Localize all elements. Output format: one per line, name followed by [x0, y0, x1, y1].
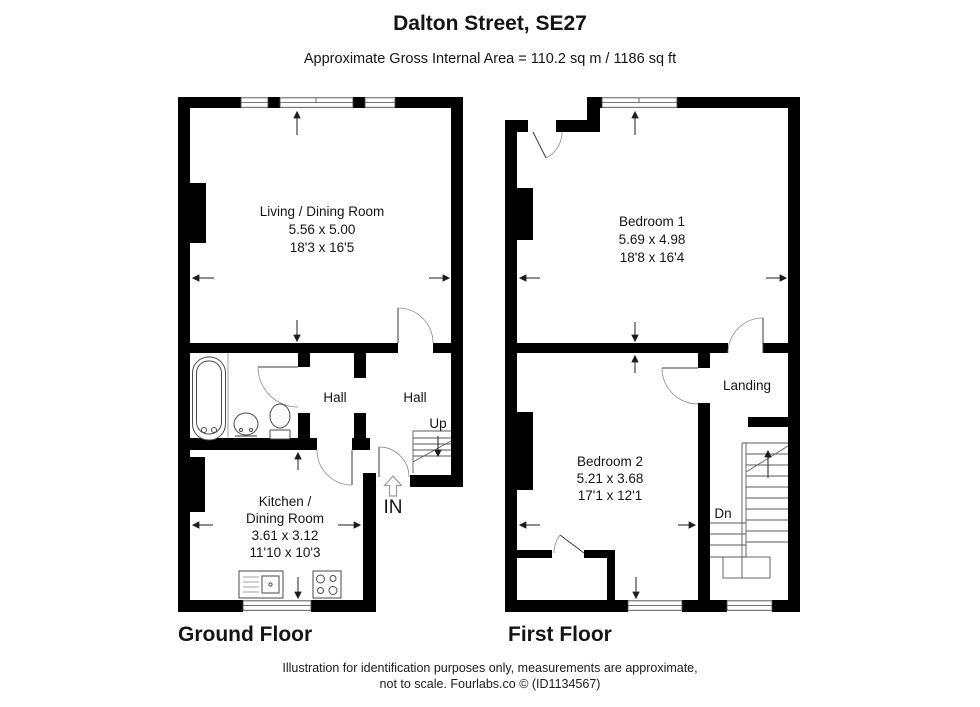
- living-room-metric: 5.56 x 5.00: [289, 222, 356, 237]
- hall-right-label: Hall: [403, 390, 426, 405]
- bedroom2-label: Bedroom 2: [577, 454, 643, 469]
- kitchen-fixtures: [239, 571, 341, 598]
- kitchen-sink-icon: [239, 571, 283, 598]
- toilet-icon: [270, 404, 290, 439]
- door-arc-icon: [258, 367, 298, 407]
- first-floor-walls: [505, 97, 800, 612]
- closet-door-arc-icon: [554, 535, 584, 553]
- front-door-arc-icon: [379, 447, 409, 477]
- entrance-in-arrow-icon: [385, 476, 402, 496]
- door-arc-icon: [662, 368, 698, 404]
- bedroom2-metric: 5.21 x 3.68: [577, 471, 644, 486]
- door-arc-icon: [728, 318, 763, 353]
- window-icon: [628, 601, 682, 611]
- page-title: Dalton Street, SE27: [393, 12, 587, 35]
- living-room-label: Living / Dining Room: [260, 204, 385, 219]
- bedroom1-metric: 5.69 x 4.98: [619, 232, 686, 247]
- stairs-down-label: Dn: [714, 506, 731, 521]
- kitchen-metric: 3.61 x 3.12: [252, 528, 319, 543]
- bedroom1-imperial: 18'8 x 16'4: [620, 250, 685, 265]
- stairs-up-label: Up: [429, 416, 446, 431]
- ground-floor-title: Ground Floor: [178, 623, 312, 646]
- kitchen-label-line1: Kitchen /: [259, 494, 312, 509]
- living-room-imperial: 18'3 x 16'5: [290, 240, 354, 255]
- entrance-in-label: IN: [384, 497, 403, 518]
- first-floor-title: First Floor: [508, 623, 612, 646]
- window-icon: [280, 98, 353, 108]
- window-icon: [243, 601, 311, 611]
- disclaimer-line1: Illustration for identification purposes…: [282, 661, 697, 675]
- door-arc-icon: [398, 308, 433, 343]
- first-floor-doors: [533, 132, 763, 553]
- bedroom2-imperial: 17'1 x 12'1: [578, 488, 642, 503]
- floorplan-page: Dalton Street, SE27 Approximate Gross In…: [0, 0, 980, 707]
- ground-floor-plan: Living / Dining Room 5.56 x 5.00 18'3 x …: [178, 97, 463, 646]
- sink-icon: [234, 413, 258, 436]
- disclaimer-line2: not to scale. Fourlabs.co © (ID1134567): [380, 677, 601, 691]
- window-icon: [602, 98, 677, 108]
- ground-floor-walls: [178, 97, 463, 612]
- window-icon: [241, 98, 268, 108]
- first-floor-plan: Bedroom 1 5.69 x 4.98 18'8 x 16'4 Landin…: [505, 97, 800, 646]
- bathroom-fixtures: [193, 353, 291, 440]
- door-arc-icon: [533, 132, 562, 158]
- window-icon: [727, 601, 772, 611]
- window-icon: [365, 98, 395, 108]
- landing-label: Landing: [723, 378, 771, 393]
- page-subtitle: Approximate Gross Internal Area = 110.2 …: [304, 51, 676, 67]
- floorplan-canvas: Dalton Street, SE27 Approximate Gross In…: [0, 0, 980, 707]
- door-arc-icon: [317, 450, 352, 485]
- bedroom1-label: Bedroom 1: [619, 214, 685, 229]
- kitchen-imperial: 11'10 x 10'3: [250, 545, 321, 560]
- bathtub-icon: [193, 357, 226, 440]
- stairs-up: [413, 431, 451, 473]
- kitchen-label-line2: Dining Room: [246, 511, 324, 526]
- first-floor-windows: [602, 98, 772, 611]
- hob-icon: [313, 571, 341, 598]
- hall-left-label: Hall: [323, 390, 346, 405]
